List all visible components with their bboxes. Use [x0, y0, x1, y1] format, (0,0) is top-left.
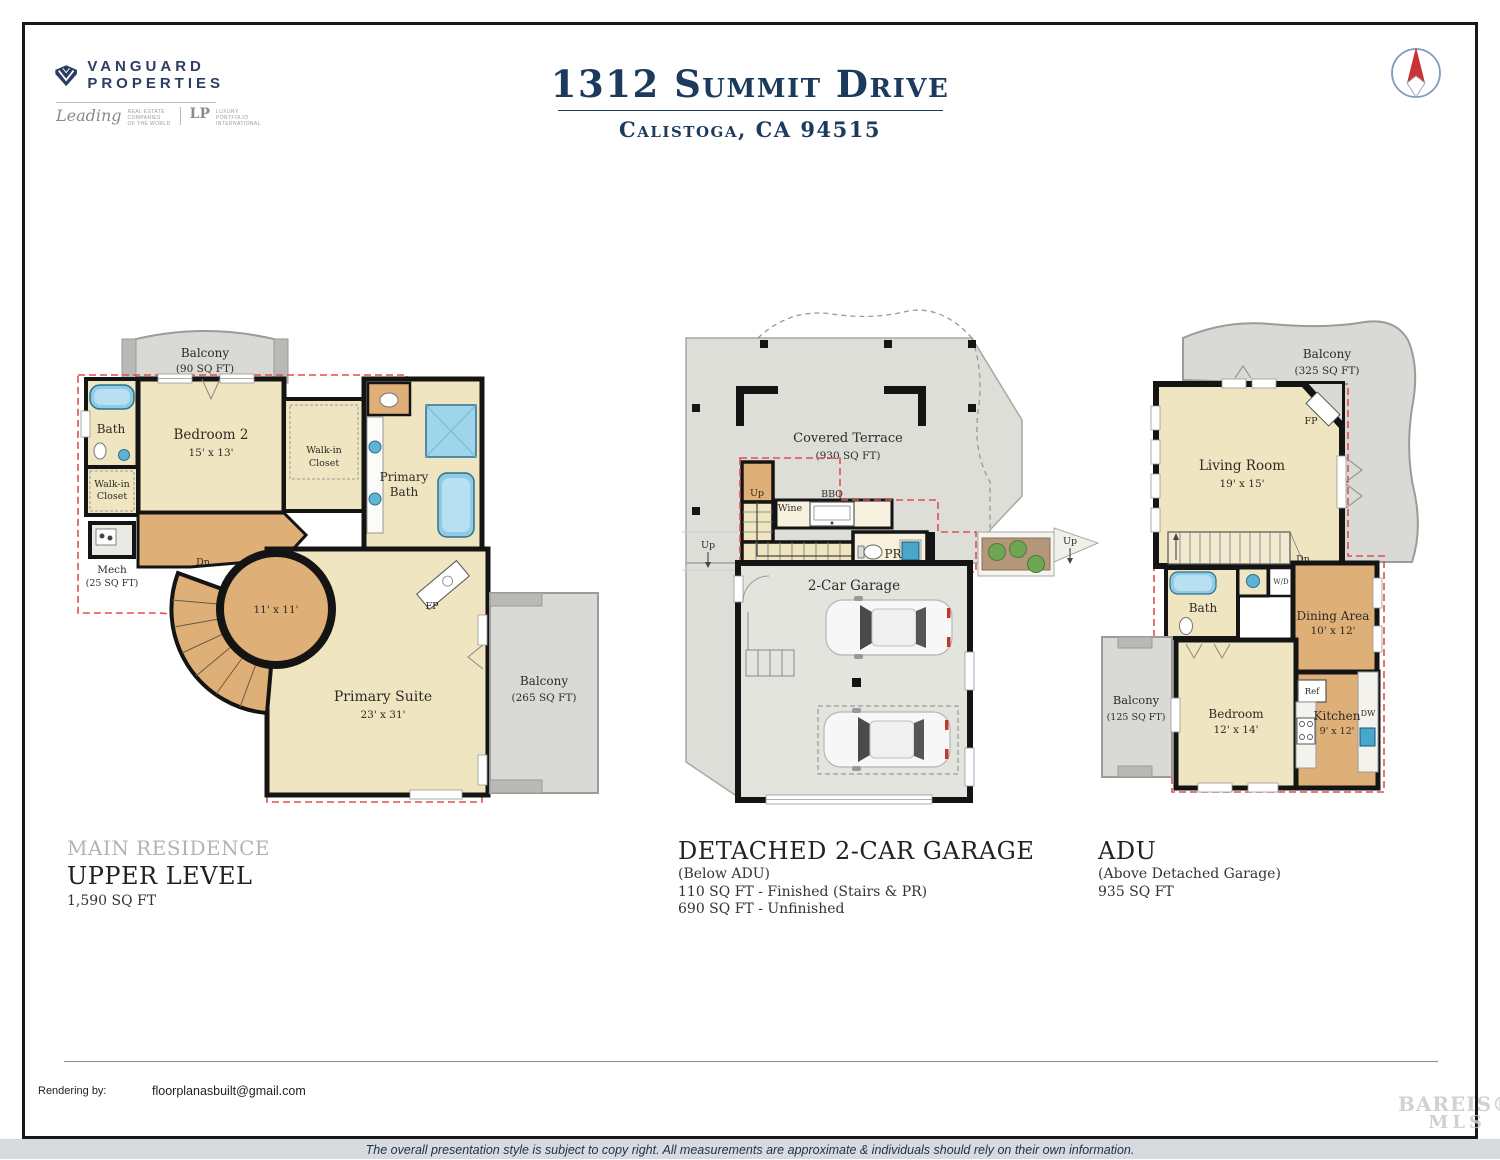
caption-series: MAIN RESIDENCE: [67, 836, 270, 861]
caption-sub: (Above Detached Garage): [1098, 866, 1281, 884]
rendering-email: floorplanasbuilt@gmail.com: [152, 1084, 306, 1098]
plan2-wine-label: Wine: [778, 503, 803, 514]
toilet-icon: [94, 443, 106, 459]
compass-icon: [1388, 44, 1444, 102]
kitchen-counter: [1358, 672, 1378, 772]
bareis-mls-watermark: BAREIS® MLS: [1398, 1094, 1486, 1132]
svg-text:Walk-in: Walk-in: [306, 445, 342, 456]
caption-area: 935 SQ FT: [1098, 884, 1281, 902]
sink-icon: [119, 450, 130, 461]
plan2-terrace-area: (930 SQ FT): [816, 450, 881, 462]
plan1-mech-area: (25 SQ FT): [86, 578, 139, 589]
sink-icon: [902, 542, 919, 560]
plan3-balcony-top-label: Balcony: [1303, 347, 1351, 361]
plan3-bath-label: Bath: [1189, 601, 1218, 615]
sink-icon: [369, 441, 381, 453]
plan2-bbq-label: BBQ: [821, 489, 843, 500]
plan1-balcony-right-label: Balcony: [520, 674, 568, 688]
page-subtitle: Calistoga, CA 94515: [0, 117, 1500, 142]
svg-text:Up: Up: [750, 488, 764, 499]
main-residence-floor-plan: Balcony (90 SQ FT): [70, 315, 610, 815]
plan3-bedroom-label: Bedroom: [1208, 707, 1264, 721]
plan1-suite-dims: 23' x 31': [360, 709, 405, 721]
plan3-wd-label: W/D: [1273, 578, 1289, 586]
plan3-ref-label: Ref: [1305, 687, 1320, 697]
plan2-pr-label: PR: [884, 547, 902, 561]
svg-text:Closet: Closet: [97, 491, 128, 502]
svg-text:Up: Up: [1063, 536, 1077, 547]
car-icon: [826, 596, 952, 659]
plan2-garage-label: 2-Car Garage: [808, 578, 900, 594]
main-residence-caption: MAIN RESIDENCE UPPER LEVEL 1,590 SQ FT: [67, 836, 270, 911]
plan3-living-label: Living Room: [1199, 458, 1285, 474]
footer-divider: [64, 1061, 1438, 1062]
sink-icon: [369, 493, 381, 505]
plan1-balcony-top-label: Balcony: [181, 346, 229, 360]
plan3-dining-dims: 10' x 12': [1310, 625, 1355, 637]
car-icon: [824, 708, 950, 771]
plan1-bedroom2-dims: 15' x 13': [188, 447, 233, 459]
page-title: 1312 Summit Drive: [0, 62, 1500, 106]
caption-line2: 690 SQ FT - Unfinished: [678, 901, 1034, 919]
plan1-dn-label: Dn: [196, 557, 210, 568]
caption-sub: (Below ADU): [678, 866, 1034, 884]
toilet-icon: [380, 393, 398, 407]
plan1-bedroom2-label: Bedroom 2: [174, 427, 249, 443]
plan2-terrace-label: Covered Terrace: [793, 431, 903, 446]
sink-icon: [1360, 728, 1375, 746]
disclaimer-text: The overall presentation style is subjec…: [366, 1143, 1135, 1157]
plan3-balcony-left: [1102, 637, 1172, 777]
caption-title: UPPER LEVEL: [67, 861, 270, 891]
plan1-mech-label: Mech: [97, 564, 127, 576]
garage-floor-plan: Covered Terrace (930 SQ FT) Up Up Up BBQ…: [680, 300, 1100, 810]
plan3-kitchen-label: Kitchen: [1314, 709, 1361, 723]
plan3-living-dims: 19' x 15': [1219, 478, 1264, 490]
plan1-bath-label: Bath: [97, 422, 126, 436]
title-underline: [558, 110, 943, 111]
svg-text:Up: Up: [701, 540, 715, 551]
plan3-dining-label: Dining Area: [1297, 609, 1370, 623]
plan1-fp-label: FP: [426, 601, 440, 612]
header-title-block: 1312 Summit Drive Calistoga, CA 94515: [0, 62, 1500, 142]
svg-text:Walk-in: Walk-in: [94, 479, 130, 490]
svg-text:Bath: Bath: [390, 485, 419, 499]
plan3-balcony-left-label: Balcony: [1113, 693, 1160, 707]
caption-title: DETACHED 2-CAR GARAGE: [678, 836, 1034, 866]
caption-title: ADU: [1098, 836, 1281, 866]
plan1-landing-dims: 11' x 11': [253, 604, 298, 616]
plan3-dw-label: DW: [1361, 709, 1376, 718]
garage-caption: DETACHED 2-CAR GARAGE (Below ADU) 110 SQ…: [678, 836, 1034, 919]
plan1-suite-label: Primary Suite: [334, 689, 432, 705]
adu-caption: ADU (Above Detached Garage) 935 SQ FT: [1098, 836, 1281, 901]
svg-text:Primary: Primary: [380, 470, 429, 484]
caption-line1: 110 SQ FT - Finished (Stairs & PR): [678, 884, 1034, 902]
plan3-kitchen-dims: 9' x 12': [1320, 726, 1355, 737]
plan3-balcony-top-area: (325 SQ FT): [1295, 365, 1360, 377]
rendering-by-label: Rendering by:: [38, 1085, 107, 1097]
stove-icon: [1297, 718, 1315, 744]
plan3-fp-label: FP: [1305, 416, 1319, 427]
plan1-balcony-top-area: (90 SQ FT): [176, 363, 234, 375]
plan3-balcony-left-area: (125 SQ FT): [1107, 712, 1166, 723]
plan3-staircase: [1168, 532, 1290, 564]
mech-equipment-icon: [96, 529, 116, 545]
plan3-bedroom-dims: 12' x 14': [1213, 724, 1258, 736]
plan1-balcony-right-area: (265 SQ FT): [512, 692, 577, 704]
disclaimer-band: The overall presentation style is subjec…: [0, 1139, 1500, 1159]
svg-text:Closet: Closet: [309, 458, 340, 469]
sink-icon: [1247, 575, 1260, 588]
toilet-icon: [1180, 618, 1193, 635]
caption-area: 1,590 SQ FT: [67, 893, 270, 911]
adu-floor-plan: Balcony (325 SQ FT) FP Living Room 19' x…: [1090, 310, 1480, 810]
toilet-icon: [864, 545, 882, 559]
plan2-roof-dashed-line: [758, 310, 972, 338]
